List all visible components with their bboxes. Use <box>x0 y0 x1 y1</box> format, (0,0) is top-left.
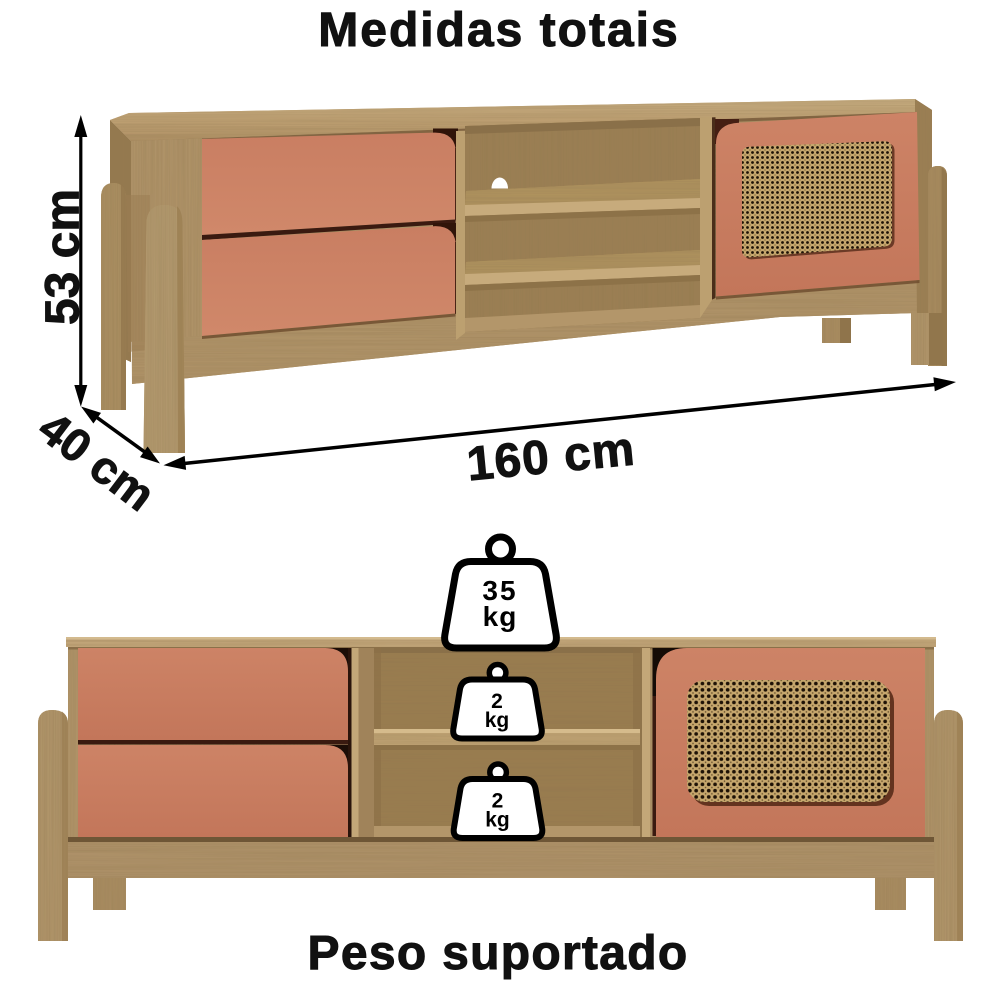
svg-text:kg: kg <box>483 601 518 632</box>
svg-text:53 cm: 53 cm <box>37 189 90 325</box>
svg-text:kg: kg <box>485 809 510 832</box>
svg-text:Medidas totais: Medidas totais <box>318 4 679 57</box>
svg-text:kg: kg <box>485 709 510 732</box>
svg-text:Peso suportado: Peso suportado <box>308 927 689 980</box>
